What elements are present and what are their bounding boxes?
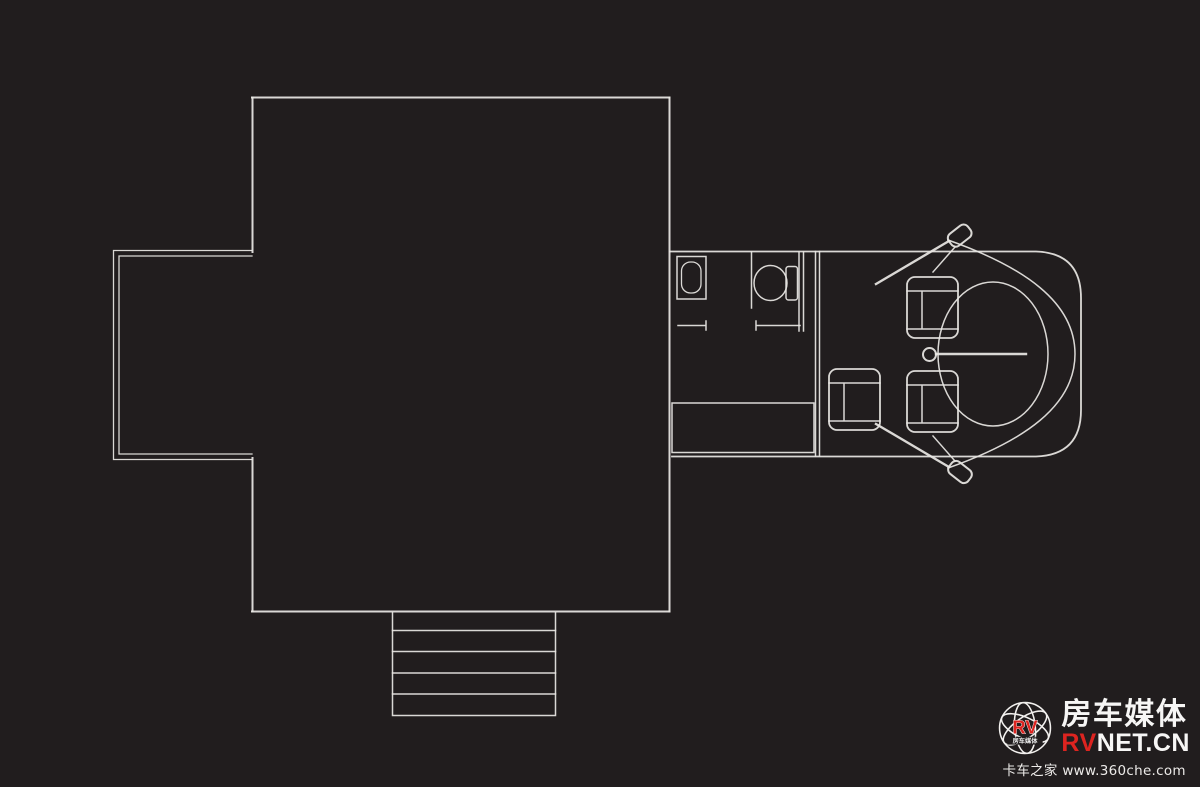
watermark-text-block: 房车媒体 RVNET.CN xyxy=(1061,700,1190,756)
badge-rv-text: RV xyxy=(1013,718,1038,738)
side-mirror-bottom xyxy=(876,424,974,485)
main-room xyxy=(252,98,670,612)
entry-step-cabinet xyxy=(672,403,814,453)
mirror-bottom-head xyxy=(946,459,974,486)
side-mirror-top xyxy=(876,222,974,284)
sink-room-door-stub xyxy=(678,321,706,330)
mirror-bottom-arm xyxy=(876,424,949,467)
slide-out-outer-wall xyxy=(114,251,253,460)
entry-stairs xyxy=(393,613,556,716)
bathroom-right-wall xyxy=(799,252,804,331)
brand-domain-netcn: NET.CN xyxy=(1097,729,1190,757)
stairs-outline xyxy=(393,613,556,716)
floorplan-canvas: RV 房车媒体 房车媒体 RVNET.CN 卡车之家 www.360che.co… xyxy=(0,0,1200,787)
side-seat-detail xyxy=(829,383,880,421)
watermark-logo: RV 房车媒体 房车媒体 RVNET.CN 卡车之家 www.360che.co… xyxy=(998,700,1190,779)
stairs-treads xyxy=(393,631,556,695)
floorplan-drawing xyxy=(0,0,1200,787)
watermark-tagline: 卡车之家 www.360che.com xyxy=(998,759,1190,779)
passenger-seat xyxy=(907,371,958,432)
steering-wheel-rim xyxy=(923,348,936,361)
side-seat xyxy=(829,369,880,430)
toilet xyxy=(754,266,798,301)
bathroom-sink xyxy=(682,262,702,293)
bathroom xyxy=(677,252,820,457)
toilet-bowl xyxy=(754,266,787,301)
watermark-logo-top: RV 房车媒体 房车媒体 RVNET.CN xyxy=(998,700,1190,756)
passenger-seat-detail xyxy=(907,385,958,423)
mirror-top-head xyxy=(946,222,974,249)
slide-out-extension xyxy=(114,251,253,460)
toilet-room-door-stub xyxy=(756,321,800,330)
brand-domain-rv: RV xyxy=(1061,729,1096,757)
cab-partition-wall xyxy=(816,252,820,457)
rv-globe-badge-icon: RV 房车媒体 xyxy=(998,701,1052,755)
slide-out-inner-wall xyxy=(119,256,252,454)
brand-domain: RVNET.CN xyxy=(1061,731,1190,756)
brand-chinese-name: 房车媒体 xyxy=(1061,700,1187,730)
driver-seat-detail xyxy=(907,291,958,329)
badge-subtext: 房车媒体 xyxy=(1012,737,1039,745)
